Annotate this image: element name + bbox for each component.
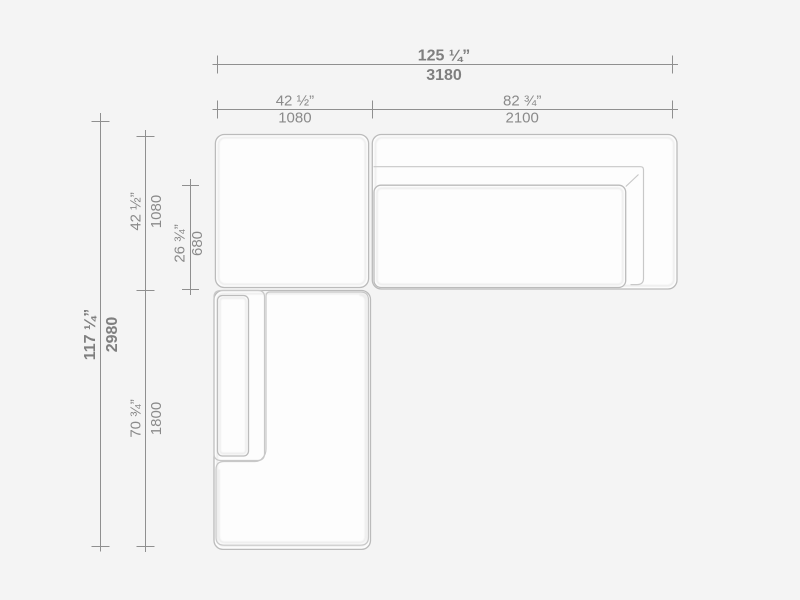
svg-text:1080: 1080 [278,110,311,127]
svg-text:2100: 2100 [506,110,539,127]
svg-text:3180: 3180 [426,67,462,84]
svg-text:42 ½”: 42 ½” [128,192,145,230]
svg-text:70 ¾”: 70 ¾” [128,399,145,437]
svg-text:125 ¼”: 125 ¼” [418,47,470,64]
svg-text:42 ½”: 42 ½” [276,92,314,109]
svg-text:1800: 1800 [148,402,165,435]
svg-text:26 ¾”: 26 ¾” [172,224,189,262]
svg-text:1080: 1080 [148,195,165,228]
svg-text:680: 680 [189,231,206,256]
svg-text:117 ¼”: 117 ¼” [82,309,99,361]
svg-text:82 ¾”: 82 ¾” [503,92,541,109]
svg-text:2980: 2980 [104,317,121,353]
